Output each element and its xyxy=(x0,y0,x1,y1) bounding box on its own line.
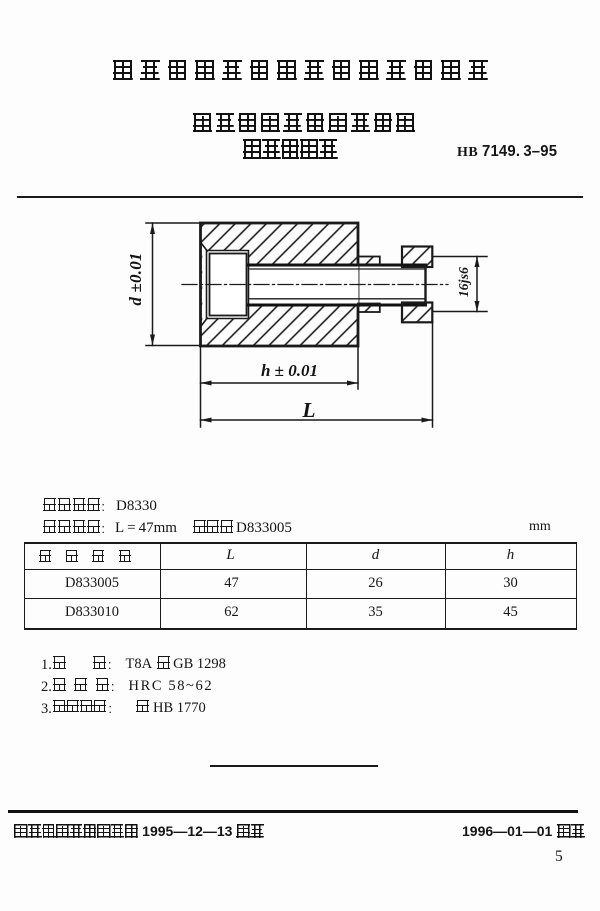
svg-text:d ±0.01: d ±0.01 xyxy=(126,252,145,305)
svg-text:16js6: 16js6 xyxy=(456,267,471,297)
svg-text:L: L xyxy=(301,398,315,422)
svg-text:h ± 0.01: h ± 0.01 xyxy=(261,361,318,380)
